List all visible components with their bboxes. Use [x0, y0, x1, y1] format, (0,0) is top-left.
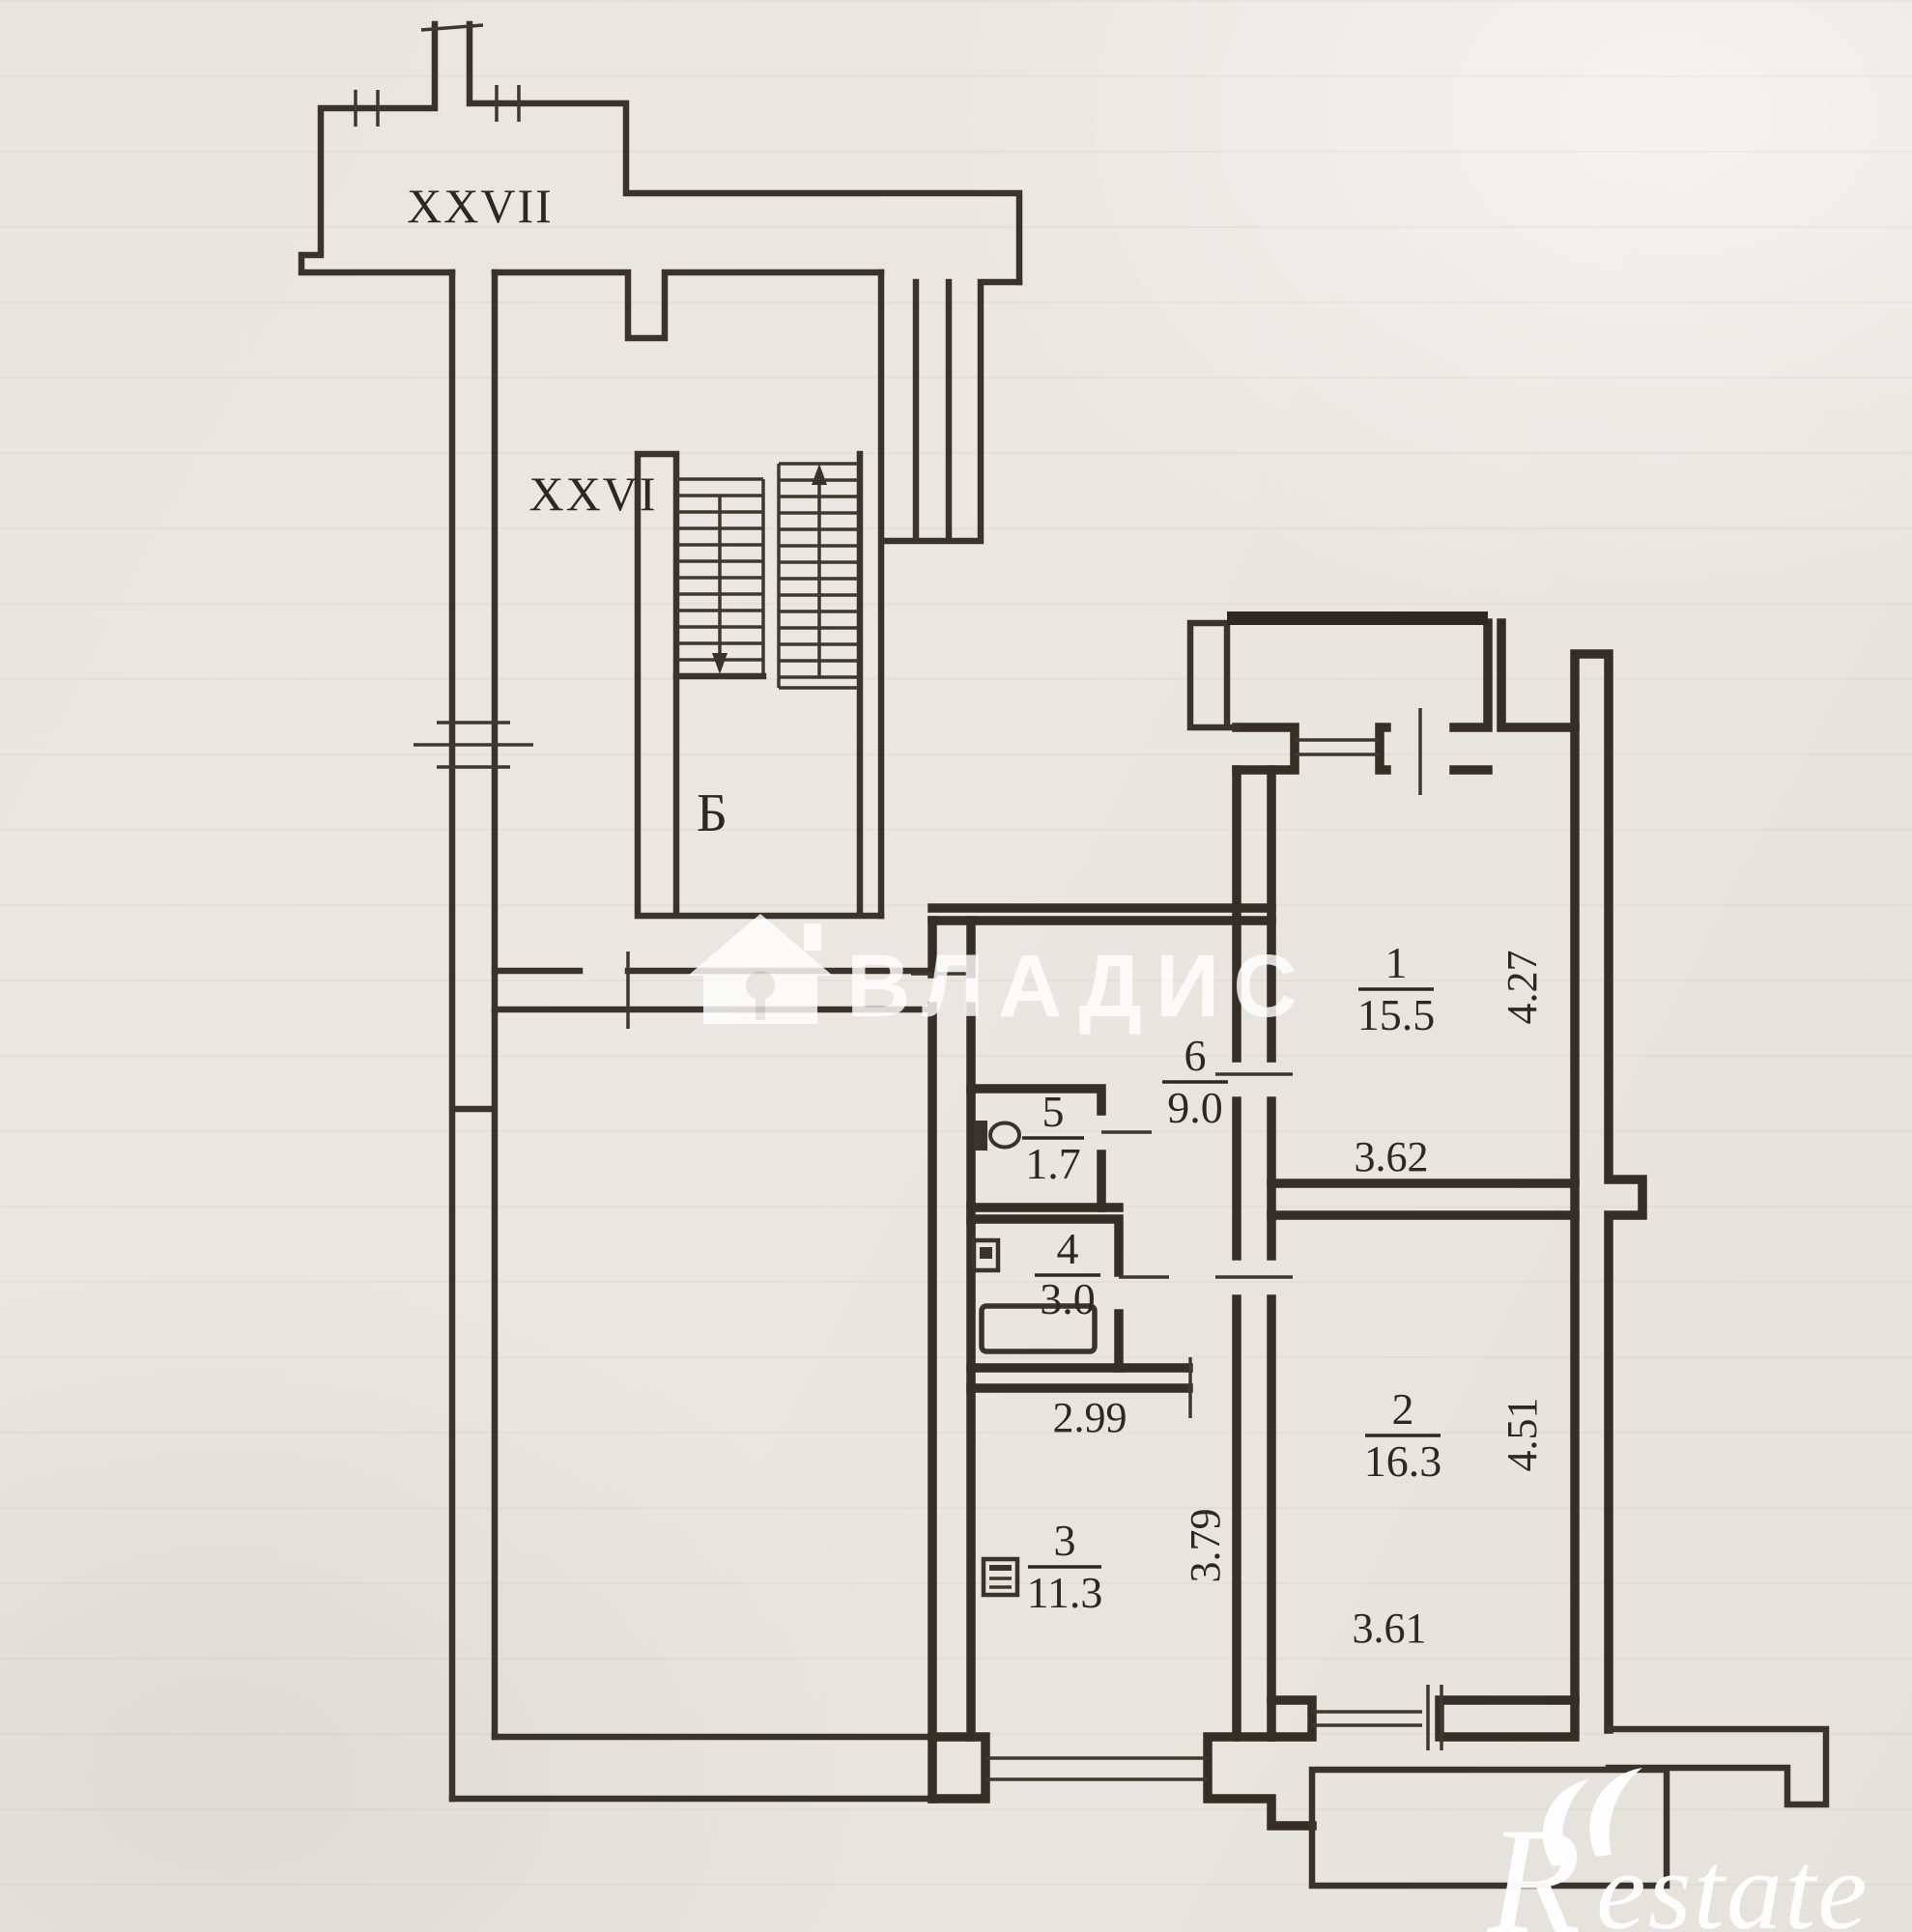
room1-area: 15.5 [1357, 990, 1436, 1039]
sink-icon [974, 1240, 998, 1270]
room-3-kitchen: 2.99 3 11.3 3.79 [1027, 1394, 1229, 1617]
restate-logo-r: R [1487, 1797, 1582, 1932]
room3-area: 11.3 [1027, 1568, 1103, 1617]
kitchen-bottom-wall [932, 1737, 1312, 1826]
vladis-watermark: ВЛАДИС [688, 914, 1311, 1036]
room3-number: 3 [1054, 1516, 1076, 1565]
kitchen-width-dim: 2.99 [1053, 1394, 1127, 1441]
apartment-outer-left-wall [932, 921, 971, 1799]
room2-area: 16.3 [1364, 1436, 1442, 1486]
room2-number: 2 [1392, 1384, 1414, 1434]
lower-left-bottom-wall [452, 1737, 932, 1799]
floorplan-drawing: XXVII XXVI Б 1 15.5 4.27 3.62 2 16.3 4.5… [0, 0, 1912, 1932]
room6-area: 9.0 [1167, 1083, 1223, 1132]
kitchen-height-dim: 3.79 [1182, 1509, 1229, 1583]
room5-number: 5 [1042, 1087, 1065, 1136]
left-corridor-window [414, 723, 533, 767]
room-4-bathroom: 4 3.0 [1035, 1224, 1100, 1323]
toilet-icon [974, 1121, 1019, 1151]
room-labels: 1 15.5 4.27 3.62 2 16.3 4.51 3.61 6 9.0 … [1022, 938, 1546, 1652]
room1-room2-divider [1271, 1183, 1575, 1215]
room2-width-dim: 3.61 [1353, 1605, 1427, 1652]
label-corridor-xxvi: XXVI [529, 467, 658, 521]
apartment-outer-right-wall [1575, 654, 1642, 1729]
staircase [676, 464, 860, 688]
bottom-right-wall-arm [1609, 1729, 1826, 1804]
label-corridor-xxvii: XXVII [407, 179, 554, 233]
room-5-wc: 5 1.7 [1022, 1087, 1084, 1188]
scanned-floorplan-page: XXVII XXVI Б 1 15.5 4.27 3.62 2 16.3 4.5… [0, 0, 1912, 1932]
hall-top-wall [932, 908, 1271, 921]
room4-area: 3.0 [1040, 1274, 1096, 1323]
restate-logo: R estate [1487, 1768, 1869, 1932]
stove-icon [984, 1559, 1017, 1595]
room6-number: 6 [1184, 1031, 1207, 1080]
apartment-walls [911, 618, 1826, 1886]
stair-arrow-up-head [812, 464, 827, 485]
stair-arrow-down-head [712, 653, 728, 674]
house-key-icon [688, 914, 833, 1024]
stair-enclosure-walls [638, 454, 881, 916]
room1-number: 1 [1385, 938, 1408, 987]
vladis-watermark-text: ВЛАДИС [846, 937, 1311, 1036]
room-2-living: 2 16.3 4.51 3.61 [1353, 1384, 1547, 1652]
kitchen-top-wall [971, 1368, 1188, 1388]
room4-number: 4 [1057, 1224, 1079, 1273]
room2-bottom-wall [1271, 1700, 1575, 1737]
room2-height-dim: 4.51 [1498, 1398, 1546, 1472]
fixtures [974, 1121, 1095, 1595]
left-corridor-walls [452, 272, 495, 1799]
central-wall [1237, 770, 1271, 1737]
room1-window-sills [1295, 740, 1380, 754]
room-1-living: 1 15.5 4.27 3.62 [1355, 938, 1547, 1180]
restate-logo-text: estate [1596, 1830, 1869, 1932]
room-6-hall: 6 9.0 [1162, 1031, 1228, 1132]
label-staircase: Б [697, 783, 728, 843]
elevator-shaft [881, 272, 1019, 916]
balcony-top-walls [1190, 623, 1237, 727]
room2-window-sills [1312, 1685, 1441, 1750]
common-area-walls [301, 24, 1019, 1799]
kitchen-window-sills [985, 1758, 1208, 1779]
room1-height-dim: 4.27 [1498, 951, 1546, 1025]
room1-top-wall [1237, 623, 1575, 770]
room1-width-dim: 3.62 [1355, 1133, 1429, 1180]
room5-area: 1.7 [1025, 1139, 1081, 1188]
